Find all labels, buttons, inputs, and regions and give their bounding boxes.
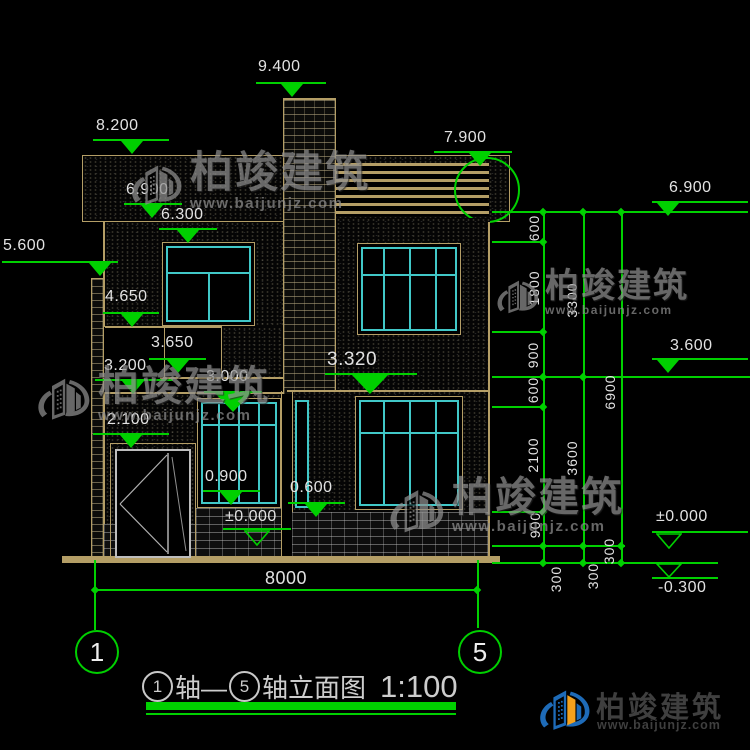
axis-number: 1 <box>90 637 104 668</box>
brand-watermark-name: 柏竣建筑 <box>545 269 689 303</box>
title-scale: 1:100 <box>380 669 458 705</box>
brand-watermark-url: www.baijunjz.com <box>545 303 689 317</box>
brand-watermark-name: 柏竣建筑 <box>452 477 624 518</box>
entrance-door <box>115 449 191 558</box>
window-upper-right <box>357 243 461 335</box>
drawing-title: 1 轴— 5 轴立面图 1:100 <box>140 668 458 705</box>
dim-tick <box>617 559 625 567</box>
detail-callout-circle <box>454 157 520 223</box>
dim-tick <box>579 208 587 216</box>
brand-watermark-name: 柏竣建筑 <box>190 152 370 195</box>
brand-watermark-name: 柏竣建筑 <box>98 366 270 407</box>
axis-number: 5 <box>473 637 487 668</box>
title-underline-thick <box>146 702 456 710</box>
window-mullion <box>435 249 437 329</box>
window-mullion <box>409 249 411 329</box>
brand-logo-icon <box>536 678 594 740</box>
dim-tick <box>473 586 481 594</box>
title-text: 轴— <box>175 668 227 705</box>
window-mullion <box>383 402 385 504</box>
dim-label: 300 <box>548 549 564 609</box>
brand-watermark-icon <box>386 477 448 543</box>
dim-label: 600 <box>526 198 542 258</box>
dim-label: 600 <box>525 360 541 420</box>
dim-label-8000: 8000 <box>265 568 307 589</box>
dim-tick <box>579 373 587 381</box>
elevation-drawing-sheet: 600 1800 900 600 2100 900 300 3300 3600 … <box>0 0 750 750</box>
window-glass <box>166 246 251 322</box>
title-axis-circle-1: 1 <box>142 671 173 702</box>
title-axis-circle-5: 5 <box>229 671 260 702</box>
dim-line-8000 <box>95 589 478 591</box>
axis-extension-line <box>477 560 479 628</box>
title-underline-thin <box>146 713 456 715</box>
window-upper-left <box>162 242 255 326</box>
dim-tick <box>617 208 625 216</box>
door-swing-lines <box>117 451 189 556</box>
brand-watermark-url: www.baijunjz.com <box>98 407 270 424</box>
recess-edge-left <box>281 391 282 558</box>
dim-label: 6900 <box>602 362 618 422</box>
dim-label: 300 <box>585 546 601 606</box>
axis-bubble-5: 5 <box>458 630 502 674</box>
brand-watermark-url: www.baijunjz.com <box>452 518 624 535</box>
axis-bubble-1: 1 <box>75 630 119 674</box>
dim-tick <box>539 559 547 567</box>
axis-extension-line <box>94 560 96 630</box>
watermark-left: 柏竣建筑 www.baijunjz.com <box>34 366 270 430</box>
watermark-lower-right: 柏竣建筑 www.baijunjz.com <box>386 477 624 543</box>
brand-watermark-icon <box>128 152 186 216</box>
watermark-right: 柏竣建筑 www.baijunjz.com <box>494 269 689 323</box>
brand-watermark-url: www.baijunjz.com <box>190 195 370 212</box>
brand-watermark-icon <box>34 366 94 430</box>
dim-tick <box>91 586 99 594</box>
window-glass <box>361 247 457 331</box>
dim-tick <box>617 542 625 550</box>
window-mullion <box>208 272 210 320</box>
watermark-center: 柏竣建筑 www.baijunjz.com <box>128 152 370 216</box>
title-text: 轴立面图 <box>262 668 366 705</box>
brand-watermark-icon <box>494 269 542 323</box>
brand-logo-url: www.baijunjz.com <box>597 718 721 732</box>
window-mullion <box>383 249 385 329</box>
